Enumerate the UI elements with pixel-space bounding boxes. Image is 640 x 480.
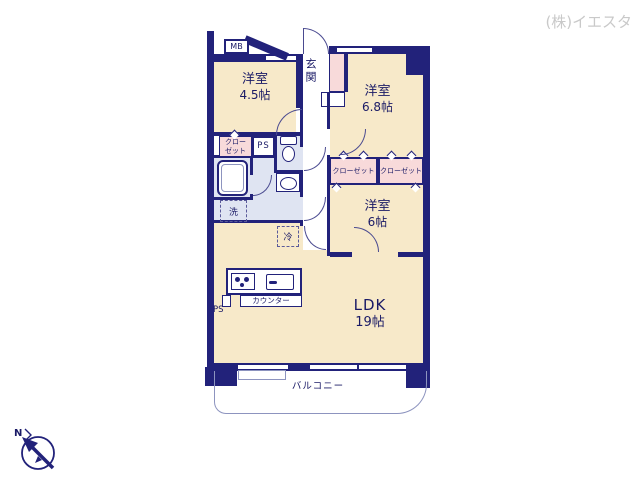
balcony-label: バルコニー xyxy=(258,381,378,393)
company-watermark: (株)イエスタ xyxy=(545,13,632,32)
bedroom2-size: 6.8帖 xyxy=(332,100,423,115)
closet-mid: クローゼット xyxy=(329,157,378,185)
stove-burner-2 xyxy=(244,277,249,282)
ldk-size: 19帖 xyxy=(300,315,440,331)
compass-north-label: N xyxy=(14,428,22,441)
closet-east-label: クローゼット xyxy=(380,167,422,176)
meter-box-label: MB xyxy=(230,42,242,52)
wall-right xyxy=(423,46,430,388)
balcony-step xyxy=(238,370,286,380)
kitchen-unit xyxy=(226,268,302,295)
entrance-label: 玄関 xyxy=(303,58,317,84)
pipe-space-top-label: PS xyxy=(257,141,270,152)
compass: N xyxy=(12,426,62,476)
bedroom2-name: 洋室 xyxy=(332,84,423,100)
entrance-door-arc xyxy=(303,28,329,54)
fridge-space: 冷 xyxy=(277,226,299,247)
stove xyxy=(231,273,255,290)
wall-bedroom3-south-w xyxy=(330,252,352,257)
window-divider xyxy=(357,364,359,370)
bedroom1-size: 4.5帖 xyxy=(214,88,296,103)
wall-bedroom3-south-e xyxy=(398,252,423,257)
floorplan-canvas: (株)イエスタ 玄関 MB クローゼット PS xyxy=(0,0,640,480)
stove-burner-1 xyxy=(235,277,240,282)
bathtub-inner xyxy=(221,164,244,192)
bedroom3-label: 洋室 6帖 xyxy=(332,199,423,230)
ldk-label: LDK 19帖 xyxy=(300,296,440,331)
washbasin-bowl xyxy=(280,177,297,190)
wall-bath-divider-n xyxy=(250,157,253,175)
faucet xyxy=(269,281,277,284)
sink xyxy=(266,274,294,290)
wall-corridor-east-a xyxy=(327,92,330,129)
toilet-tank xyxy=(280,136,297,145)
washer-space: 洗 xyxy=(220,200,247,222)
pipe-space-top: PS xyxy=(252,136,275,157)
washbasin xyxy=(276,173,300,192)
window-top-east xyxy=(337,47,372,53)
washer-label: 洗 xyxy=(229,205,238,218)
wall-left xyxy=(207,31,214,371)
counter: カウンター xyxy=(240,295,302,307)
wall-corridor-west-c xyxy=(300,221,303,226)
bedroom1-name: 洋室 xyxy=(214,72,296,88)
closet-west-label: クローゼット xyxy=(223,138,249,154)
stove-burner-3 xyxy=(240,283,244,287)
closet-east: クローゼット xyxy=(378,157,424,185)
bathtub xyxy=(217,160,248,196)
fridge-label: 冷 xyxy=(283,230,292,243)
bedroom3-size: 6帖 xyxy=(332,215,423,230)
meter-box: MB xyxy=(224,39,249,54)
counter-label: カウンター xyxy=(252,296,290,305)
toilet-bowl xyxy=(282,146,295,162)
bedroom2-label: 洋室 6.8帖 xyxy=(332,84,423,115)
closet-mid-label: クローゼット xyxy=(333,167,375,176)
pipe-space-kitchen-label: PS xyxy=(213,305,233,316)
ldk-name: LDK xyxy=(300,296,440,315)
closet-west: クローゼット xyxy=(219,136,252,157)
bedroom3-name: 洋室 xyxy=(332,199,423,215)
wall-corridor-west-b xyxy=(300,171,303,197)
bedroom1-label: 洋室 4.5帖 xyxy=(214,72,296,103)
